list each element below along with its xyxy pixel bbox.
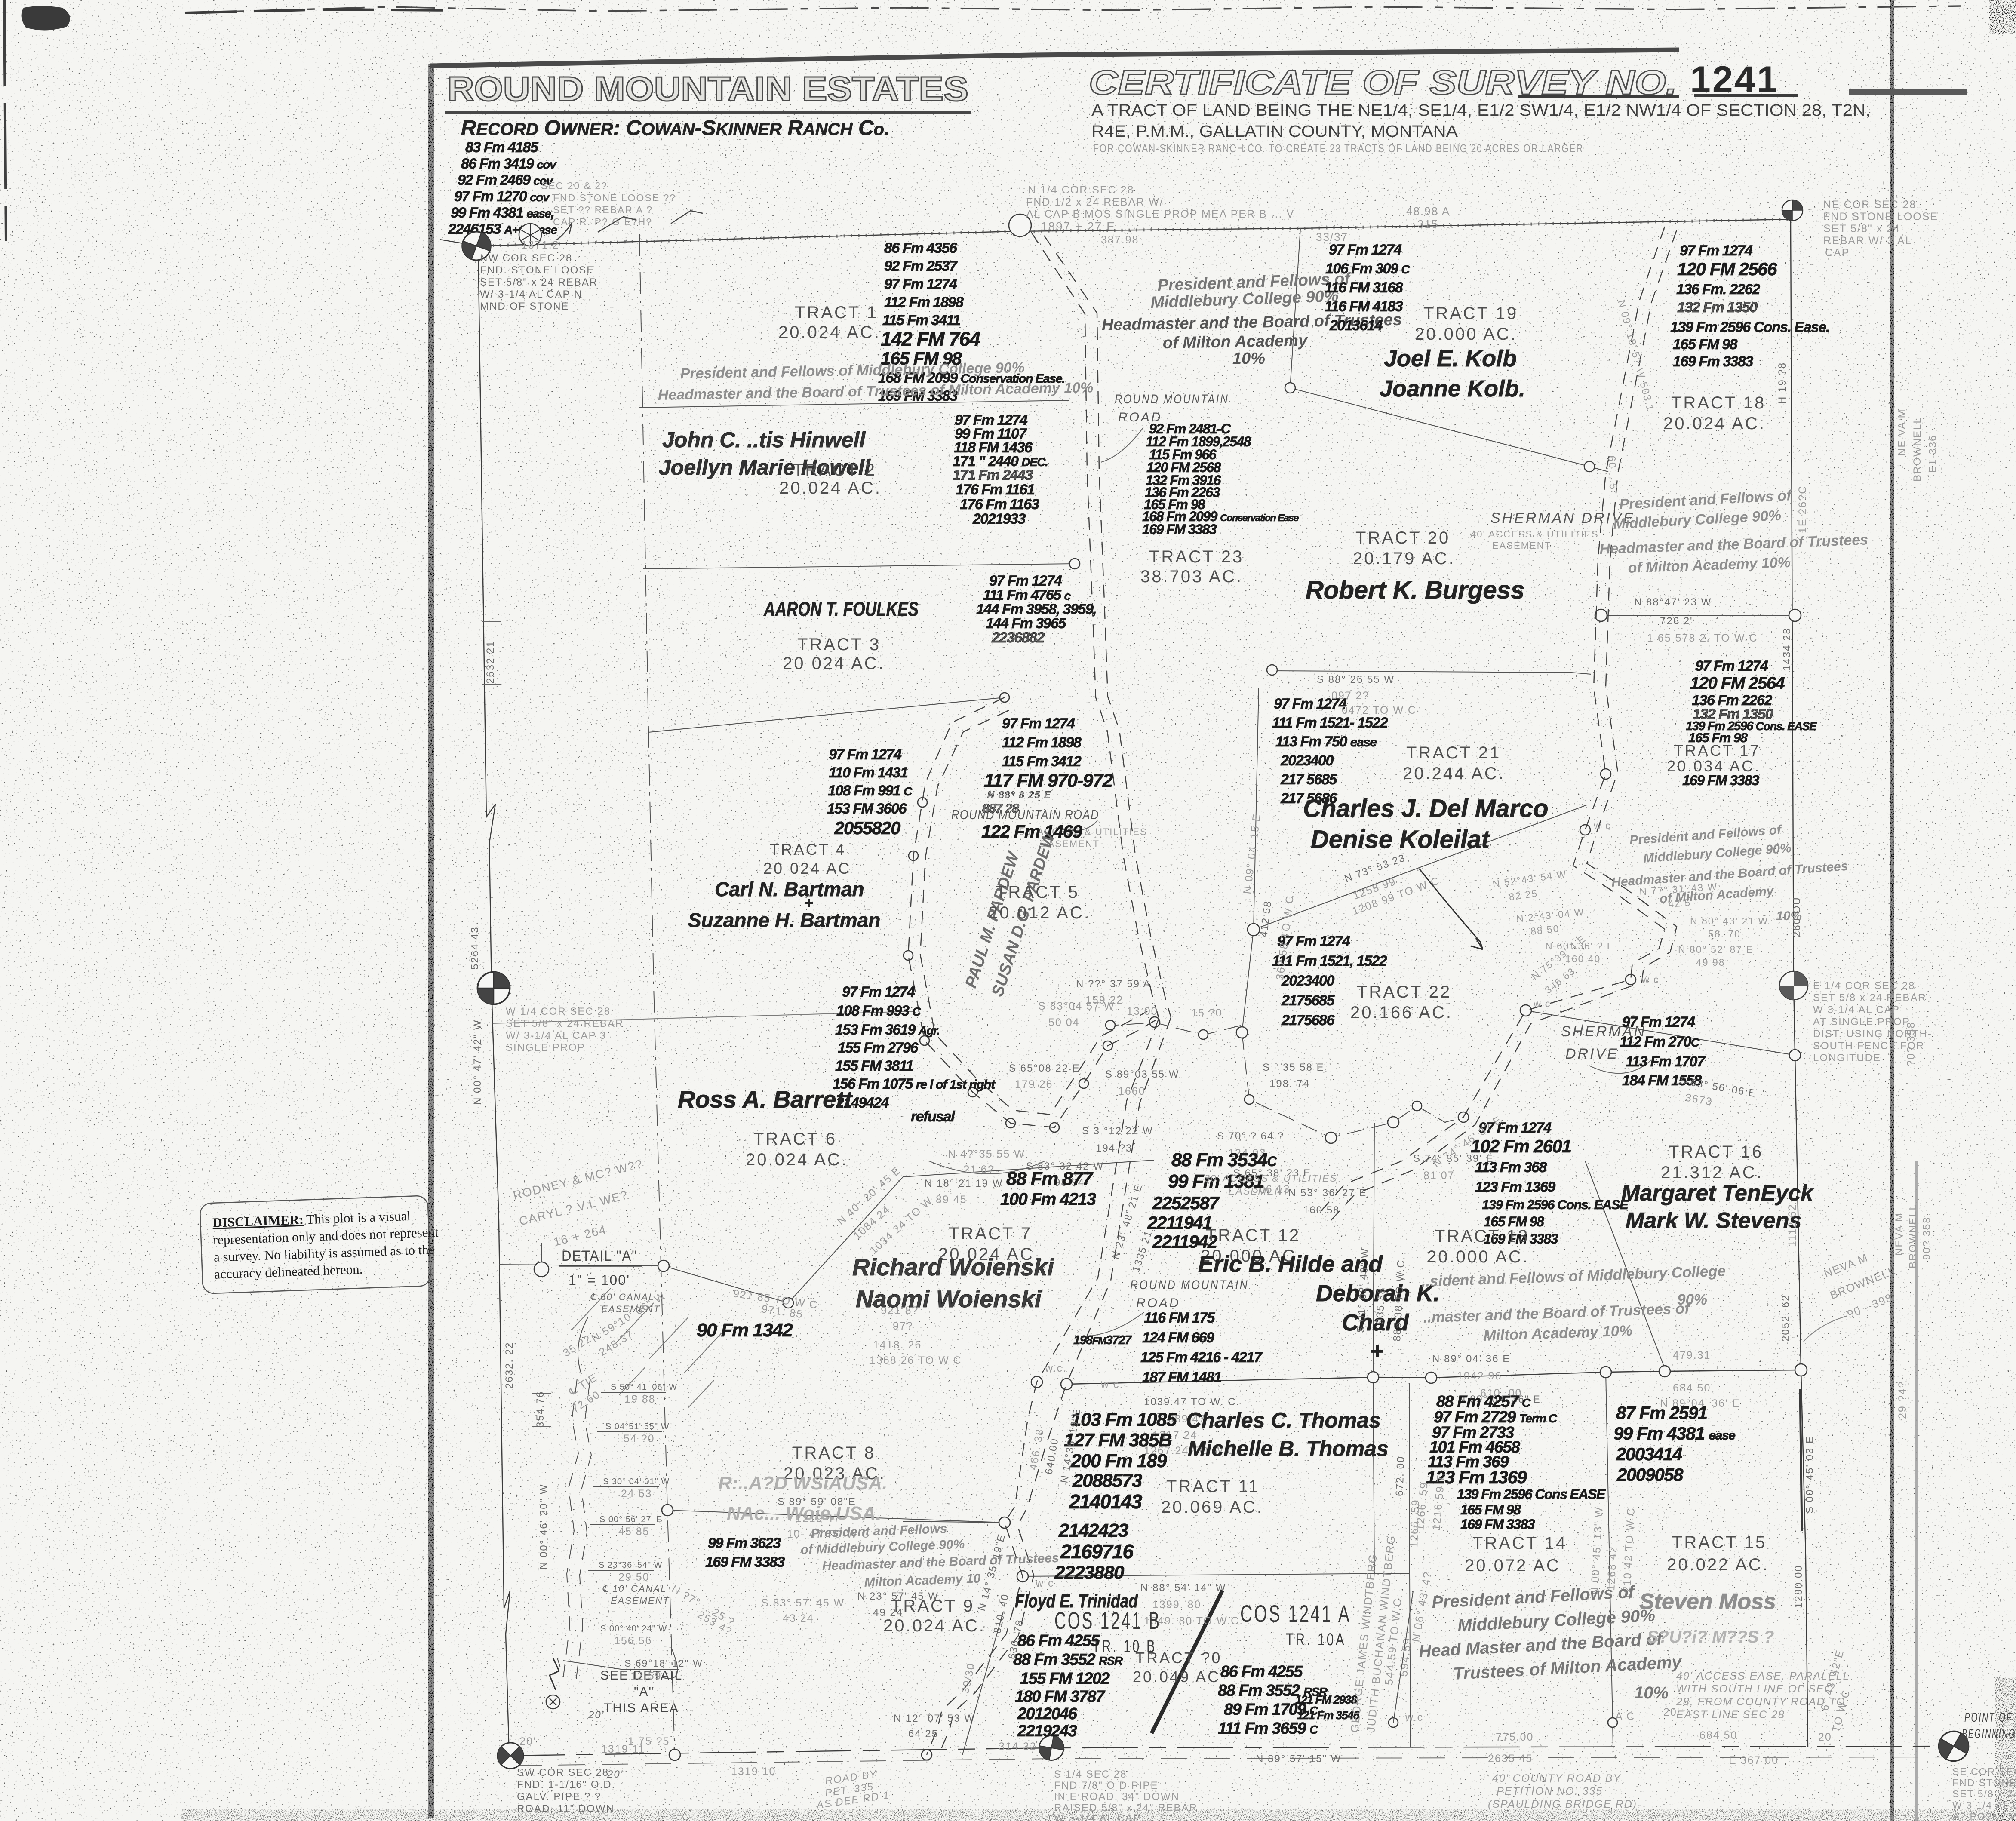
svg-text:110 Fm 1431: 110 Fm 1431: [829, 765, 908, 781]
svg-text:120 FM 2564: 120 FM 2564: [1690, 674, 1785, 693]
svg-text:AL CAP B MOS SINGLE PROP MEA P: AL CAP B MOS SINGLE PROP MEA PER B ... V: [1026, 208, 1294, 220]
svg-text:142 FM 764: 142 FM 764: [881, 328, 980, 350]
svg-text:1039.47 TO W. C.: 1039.47 TO W. C.: [1144, 1396, 1240, 1408]
svg-text:TRACT 1: TRACT 1: [795, 303, 878, 322]
svg-text:TRACT 23: TRACT 23: [1149, 547, 1244, 566]
svg-text:111 Fm 3659 C: 111 Fm 3659 C: [1218, 1720, 1318, 1738]
svg-text:N 18° 21 19 W: N 18° 21 19 W: [925, 1178, 1003, 1189]
svg-text:20.024 AC.: 20.024 AC.: [1663, 414, 1766, 433]
svg-text:A TRACT OF LAND BEING THE NE1/: A TRACT OF LAND BEING THE NE1/4, SE1/4, …: [1091, 101, 1871, 120]
svg-text:CAP: CAP: [1825, 247, 1850, 259]
svg-text:354.76: 354.76: [535, 1391, 546, 1428]
svg-text:Denise Koleilat: Denise Koleilat: [1311, 826, 1490, 854]
svg-text:Eric B. Hilde and: Eric B. Hilde and: [1198, 1251, 1383, 1277]
svg-text:99 Fm 4381 ease,: 99 Fm 4381 ease,: [451, 205, 554, 221]
svg-text:169 FM 3383: 169 FM 3383: [705, 1554, 785, 1570]
svg-text:?0? 358: ?0? 358: [1905, 1022, 1917, 1066]
svg-text:2009058: 2009058: [1616, 1465, 1684, 1485]
svg-text:40' COUNTY ROAD BY: 40' COUNTY ROAD BY: [1492, 1772, 1621, 1784]
svg-text:165 FM 98: 165 FM 98: [1460, 1502, 1521, 1517]
svg-text:N 00° 46' 20" W: N 00° 46' 20" W: [538, 1484, 550, 1569]
svg-text:49 98: 49 98: [1696, 957, 1725, 968]
svg-text:Joanne Kolb.: Joanne Kolb.: [1380, 376, 1525, 402]
svg-text:TRACT 8: TRACT 8: [792, 1443, 876, 1462]
svg-text:S 30° 04' 01" W: S 30° 04' 01" W: [603, 1477, 670, 1486]
svg-text:COS 1241 B: COS 1241 B: [1054, 1607, 1161, 1634]
svg-text:12.59: 12.59: [630, 1670, 662, 1682]
svg-text:N 80° 43' 21 W: N 80° 43' 21 W: [1690, 915, 1768, 927]
svg-text:THIS AREA: THIS AREA: [604, 1701, 679, 1715]
svg-text:N 80° 52' 87 E: N 80° 52' 87 E: [1678, 944, 1754, 955]
svg-text:N 88° 8 25 E: N 88° 8 25 E: [987, 789, 1051, 800]
svg-text:81 07: 81 07: [1423, 1170, 1455, 1182]
svg-text:Charles J. Del Marco: Charles J. Del Marco: [1303, 795, 1549, 823]
svg-text:1660: 1660: [1118, 1085, 1146, 1097]
svg-text:TRACT 13: TRACT 13: [1435, 1227, 1529, 1246]
svg-text:86 Fm 4356: 86 Fm 4356: [884, 240, 958, 256]
svg-text:TRACT 20: TRACT 20: [1355, 528, 1450, 547]
svg-text:John C. ..tis Hinwell: John C. ..tis Hinwell: [662, 428, 866, 452]
svg-text:S 50° 41' 06" W: S 50° 41' 06" W: [611, 1382, 677, 1392]
svg-text:Michelle B. Thomas: Michelle B. Thomas: [1188, 1437, 1389, 1461]
svg-text:684 50: 684 50: [1699, 1729, 1737, 1741]
svg-text:136 Fm. 2262: 136 Fm. 2262: [1676, 281, 1760, 298]
svg-text:2142423: 2142423: [1058, 1520, 1128, 1541]
svg-text:115 Fm 3411: 115 Fm 3411: [882, 312, 960, 329]
svg-text:TRACT 3: TRACT 3: [797, 635, 881, 654]
svg-text:40' ACCESS EASE. PARALELL: 40' ACCESS EASE. PARALELL: [1676, 1670, 1850, 1682]
svg-text:20.179 AC.: 20.179 AC.: [1353, 549, 1455, 568]
svg-text:116 FM 175: 116 FM 175: [1144, 1310, 1216, 1326]
svg-text:AARON T. FOULKES: AARON T. FOULKES: [763, 598, 919, 620]
svg-text:N 1/4 COR SEC 28: N 1/4 COR SEC 28: [1028, 184, 1134, 196]
svg-text:1319 10: 1319 10: [731, 1766, 776, 1778]
svg-text:2088573: 2088573: [1072, 1470, 1142, 1491]
svg-text:Naomi Woienski: Naomi Woienski: [856, 1285, 1042, 1312]
svg-text:Mark W. Stevens: Mark W. Stevens: [1626, 1208, 1801, 1233]
svg-text:EASEMENT: EASEMENT: [1228, 1185, 1290, 1197]
svg-text:w c: w c: [1035, 1577, 1054, 1589]
svg-text:97 Fm 1274: 97 Fm 1274: [829, 746, 902, 763]
svg-text:60 ...5: 60 ...5: [1606, 455, 1619, 491]
svg-text:Steven Moss: Steven Moss: [1639, 1589, 1776, 1614]
svg-text:Suzanne H. Bartman: Suzanne H. Bartman: [688, 909, 880, 931]
svg-text:97 Fm 1274: 97 Fm 1274: [842, 984, 915, 1000]
svg-text:EAST LINE SEC 28: EAST LINE SEC 28: [1676, 1709, 1785, 1721]
svg-text:90? 358: 90? 358: [1921, 1216, 1933, 1260]
svg-text:124 FM 669: 124 FM 669: [1142, 1330, 1214, 1346]
svg-text:99 Fm 3623: 99 Fm 3623: [708, 1535, 781, 1551]
svg-text:Robert K. Burgess: Robert K. Burgess: [1306, 576, 1524, 604]
svg-text:w c: w c: [1533, 998, 1551, 1009]
svg-text:w.c: w.c: [1405, 1711, 1423, 1723]
svg-text:155 FM 3811: 155 FM 3811: [835, 1058, 913, 1074]
svg-text:29 50: 29 50: [618, 1571, 650, 1583]
svg-text:PETITION NO. 335: PETITION NO. 335: [1497, 1785, 1603, 1797]
svg-text:S 70° ? 64 ?: S 70° ? 64 ?: [1217, 1130, 1284, 1142]
svg-text:2140143: 2140143: [1069, 1490, 1142, 1513]
svg-text:139 Fm 2596 Cons EASE: 139 Fm 2596 Cons EASE: [1457, 1486, 1606, 1502]
svg-text:88 Fm 3534C: 88 Fm 3534C: [1171, 1149, 1277, 1170]
svg-text:N ??° 37 59 A: N ??° 37 59 A: [1076, 978, 1151, 990]
svg-text:217 5685: 217 5685: [1280, 771, 1337, 788]
svg-text:+: +: [1370, 1338, 1384, 1364]
svg-text:20.049 AC: 20.049 AC: [1133, 1668, 1220, 1686]
svg-text:21.312 AC.: 21.312 AC.: [1661, 1163, 1763, 1182]
svg-text:112 Fm 1898: 112 Fm 1898: [1002, 734, 1082, 751]
svg-text:℄ 10' CANAL: ℄ 10' CANAL: [602, 1583, 667, 1594]
svg-text:FND STONE LOOSE: FND STONE LOOSE: [1823, 211, 1938, 223]
svg-text:24 53: 24 53: [621, 1488, 652, 1500]
svg-text:125 Fm 4216 - 4217: 125 Fm 4216 - 4217: [1140, 1349, 1263, 1366]
svg-text:N 88° 54' 14" W: N 88° 54' 14" W: [1140, 1582, 1226, 1594]
svg-text:?1 6?: ?1 6?: [963, 1164, 995, 1176]
svg-text:SET 5/8" x 24: SET 5/8" x 24: [1823, 223, 1900, 235]
svg-text:Charles C. Thomas: Charles C. Thomas: [1186, 1408, 1381, 1432]
svg-text:123 Fm 1369: 123 Fm 1369: [1475, 1179, 1555, 1195]
svg-text:97 Fm 1274: 97 Fm 1274: [1695, 658, 1768, 674]
svg-text:1897 + 27 E: 1897 + 27 E: [1041, 220, 1116, 233]
svg-text:COS 1241 A: COS 1241 A: [1240, 1600, 1351, 1627]
svg-text:387.98: 387.98: [1101, 234, 1139, 246]
svg-text:165 FM 98: 165 FM 98: [1673, 336, 1738, 353]
svg-text:20.024 AC.: 20.024 AC.: [746, 1150, 848, 1169]
svg-text:ROUND MOUNTAIN: ROUND MOUNTAIN: [1130, 1278, 1249, 1292]
svg-text:BROWNELL: BROWNELL: [1912, 417, 1923, 482]
svg-text:2021933: 2021933: [972, 511, 1026, 527]
svg-text:S?U?i? M??S ?: S?U?i? M??S ?: [1647, 1628, 1774, 1646]
svg-text:20.034 AC.: 20.034 AC.: [1667, 757, 1761, 775]
svg-text:2632 21: 2632 21: [485, 640, 496, 684]
svg-text:1371.2: 1371.2: [521, 239, 559, 251]
svg-text:S 00° 45' 03 E: S 00° 45' 03 E: [1804, 1436, 1816, 1514]
svg-text:20.244 AC.: 20.244 AC.: [1403, 764, 1505, 783]
svg-text:ROUND MOUNTAIN ESTATES: ROUND MOUNTAIN ESTATES: [447, 70, 968, 108]
svg-text:86 Fm 3419 cov: 86 Fm 3419 cov: [461, 156, 557, 172]
svg-text:88 Fm 877: 88 Fm 877: [1006, 1168, 1094, 1189]
svg-text:TRACT 19: TRACT 19: [1423, 304, 1518, 323]
svg-text:43 24: 43 24: [783, 1612, 814, 1624]
svg-text:155 FM 1202: 155 FM 1202: [1020, 1670, 1110, 1688]
svg-text:1" = 100': 1" = 100': [569, 1272, 630, 1288]
svg-text:A C: A C: [1615, 1710, 1635, 1723]
svg-text:92 Fm 2537: 92 Fm 2537: [884, 258, 958, 274]
svg-text:N 53° 36' 27 E: N 53° 36' 27 E: [1288, 1187, 1367, 1199]
svg-text:R:..A?D WSiAUSA.: R:..A?D WSiAUSA.: [718, 1473, 888, 1494]
svg-text:100 Fm 4213: 100 Fm 4213: [1000, 1190, 1096, 1209]
svg-text:260 OU: 260 OU: [1791, 897, 1803, 937]
svg-text:121 FM 2938: 121 FM 2938: [1295, 1693, 1357, 1706]
svg-text:ROAD: ROAD: [1136, 1296, 1180, 1310]
svg-text:20': 20': [588, 1709, 604, 1721]
svg-text:314 32: 314 32: [999, 1741, 1036, 1753]
svg-text:155 Fm 2796: 155 Fm 2796: [838, 1040, 919, 1056]
svg-text:127 FM 385B: 127 FM 385B: [1064, 1430, 1172, 1451]
svg-text:1266. 59: 1266. 59: [1408, 1499, 1422, 1548]
svg-text:0472 TO W C: 0472 TO W C: [1342, 704, 1417, 716]
svg-text:113 Fm 1707: 113 Fm 1707: [1626, 1053, 1706, 1070]
svg-text:179 26: 179 26: [1015, 1078, 1053, 1090]
svg-text:BROWNELL: BROWNELL: [1907, 1204, 1919, 1268]
svg-text:200 Fm 189: 200 Fm 189: [1070, 1450, 1167, 1471]
svg-text:TRACT 2: TRACT 2: [793, 461, 876, 479]
svg-text:NE VA M: NE VA M: [1896, 408, 1908, 456]
svg-text:TRACT 9: TRACT 9: [891, 1597, 974, 1615]
svg-text:198. 74: 198. 74: [1269, 1078, 1310, 1090]
svg-text:92 Fm 2469 cov: 92 Fm 2469 cov: [458, 172, 553, 188]
svg-text:20.012 AC.: 20.012 AC.: [988, 903, 1091, 922]
svg-text:FND 1/2 x 24 REBAR W/: FND 1/2 x 24 REBAR W/: [1026, 196, 1164, 208]
svg-text:1434 28: 1434 28: [1781, 627, 1793, 671]
svg-text:2052. 62: 2052. 62: [1780, 1295, 1792, 1342]
svg-text:TRACT 4: TRACT 4: [770, 841, 846, 858]
svg-text:86 Fm 4255: 86 Fm 4255: [1017, 1632, 1100, 1650]
svg-text:1042 96: 1042 96: [1457, 1370, 1502, 1382]
svg-text:2175685: 2175685: [1281, 992, 1335, 1009]
svg-text:20.166 AC.: 20.166 AC.: [1350, 1003, 1453, 1022]
svg-text:2632. 22: 2632. 22: [504, 1342, 515, 1389]
svg-text:of Milton Academy: of Milton Academy: [1162, 332, 1308, 352]
svg-text:2012046: 2012046: [1017, 1705, 1078, 1723]
svg-text:115 Fm 3412: 115 Fm 3412: [1002, 753, 1082, 770]
svg-text:S 83°04 57 W: S 83°04 57 W: [1038, 1000, 1115, 1012]
svg-text:TRACT 14: TRACT 14: [1472, 1534, 1567, 1553]
svg-text:refusal: refusal: [911, 1109, 956, 1125]
svg-text:2023400: 2023400: [1281, 973, 1334, 989]
svg-text:N 88°47' 23 W: N 88°47' 23 W: [1634, 596, 1712, 608]
svg-text:19 88: 19 88: [624, 1393, 656, 1405]
svg-text:ROUND MOUNTAIN ROAD: ROUND MOUNTAIN ROAD: [951, 807, 1099, 822]
svg-text:20.000 AC.: 20.000 AC.: [1427, 1247, 1529, 1266]
svg-text:112 Fm 1898: 112 Fm 1898: [884, 294, 964, 310]
svg-text:2175686: 2175686: [1281, 1012, 1335, 1029]
svg-text:176 Fm 1163: 176 Fm 1163: [960, 496, 1039, 513]
svg-text:BEGINNING: BEGINNING: [1962, 1727, 2016, 1741]
svg-text:116 FM 4183: 116 FM 4183: [1325, 298, 1403, 315]
svg-text:S ° 35 58 E: S ° 35 58 E: [1263, 1062, 1325, 1073]
svg-text:20': 20': [519, 1735, 536, 1747]
svg-text:S 83° 57' 45 W: S 83° 57' 45 W: [761, 1597, 845, 1609]
svg-text:1 75 ?5: 1 75 ?5: [628, 1735, 670, 1747]
svg-text:169 FM 3383: 169 FM 3383: [1142, 522, 1217, 537]
svg-text:775.00: 775.00: [1496, 1731, 1534, 1743]
svg-text:116 FM 3168: 116 FM 3168: [1325, 279, 1403, 296]
svg-text:2013614: 2013614: [1329, 317, 1383, 334]
svg-text:DETAIL "A": DETAIL "A": [562, 1248, 637, 1264]
svg-text:1219 47: 1219 47: [796, 1513, 840, 1525]
svg-text:64 25: 64 25: [908, 1728, 938, 1740]
svg-text:97 Fm 1274: 97 Fm 1274: [1329, 242, 1402, 258]
svg-text:TRACT 22: TRACT 22: [1357, 983, 1451, 1001]
svg-text:S 00° 40' 24" W: S 00° 40' 24" W: [600, 1624, 667, 1634]
svg-text:FOR COWAN-SKINNER RANCH CO. T: FOR COWAN-SKINNER RANCH CO. TO CREATE 23…: [1093, 142, 1583, 155]
svg-text:20': 20': [607, 1769, 623, 1780]
svg-text:108 Fm 991 C: 108 Fm 991 C: [828, 783, 913, 799]
svg-text:113 Fm 750 ease: 113 Fm 750 ease: [1275, 734, 1377, 750]
svg-text:Ross A. Barrett: Ross A. Barrett: [678, 1086, 853, 1113]
svg-text:N 12° 07' 53 W: N 12° 07' 53 W: [894, 1713, 975, 1724]
svg-text:122 Fm 1469: 122 Fm 1469: [981, 821, 1082, 841]
svg-text:TRACT 11: TRACT 11: [1166, 1477, 1260, 1496]
svg-text:2169716: 2169716: [1060, 1540, 1134, 1563]
svg-text:90 Fm 1342: 90 Fm 1342: [697, 1320, 793, 1341]
svg-text:N 00° 47' 42" W: N 00° 47' 42" W: [472, 1020, 483, 1105]
svg-text:29 ?4?: 29 ?4?: [1896, 1381, 1908, 1419]
svg-text:97 Fm 1274: 97 Fm 1274: [1002, 716, 1075, 732]
svg-text:S 89°03 55 W: S 89°03 55 W: [1105, 1069, 1179, 1080]
svg-text:N 89° 04' 36 E: N 89° 04' 36 E: [1432, 1353, 1510, 1365]
svg-text:2635 45: 2635 45: [1488, 1753, 1533, 1765]
svg-text:180 FM 3787: 180 FM 3787: [1015, 1688, 1106, 1706]
svg-text:S 65°08 22 E: S 65°08 22 E: [1009, 1063, 1080, 1074]
svg-text:5264 43: 5264 43: [469, 926, 481, 970]
svg-text:106 Fm 309 C: 106 Fm 309 C: [1325, 261, 1410, 277]
svg-text:S 69°18' 12" W: S 69°18' 12" W: [624, 1658, 703, 1669]
svg-text:S 88° 26 55 W: S 88° 26 55 W: [1317, 674, 1395, 685]
svg-text:NE COR SEC 28,: NE COR SEC 28,: [1823, 199, 1920, 211]
svg-text:Joel E. Kolb: Joel E. Kolb: [1384, 346, 1517, 372]
svg-text:TRACT 12: TRACT 12: [1206, 1226, 1300, 1245]
svg-text:97 Fm 1274: 97 Fm 1274: [884, 276, 957, 292]
svg-text:TRACT 5: TRACT 5: [996, 883, 1079, 902]
svg-text:ROUND MOUNTAIN: ROUND MOUNTAIN: [1115, 392, 1229, 406]
svg-text:TRACT 7: TRACT 7: [949, 1224, 1032, 1243]
svg-text:479.31: 479.31: [1673, 1349, 1711, 1361]
svg-text:w c: w c: [1641, 974, 1660, 985]
svg-text:1 65 578 2. TO W C: 1 65 578 2. TO W C: [1647, 632, 1758, 644]
svg-text:REBAR W/ 3 AL: REBAR W/ 3 AL: [1823, 235, 1912, 247]
svg-text:103 Fm 1085: 103 Fm 1085: [1071, 1409, 1177, 1430]
svg-text:156 Fm 1075 re l of 1st right: 156 Fm 1075 re l of 1st right: [833, 1076, 996, 1092]
svg-text:Margaret TenEyck: Margaret TenEyck: [1621, 1181, 1814, 1206]
svg-text:171 Fm 2443: 171 Fm 2443: [953, 467, 1033, 483]
svg-text:89 45: 89 45: [936, 1194, 967, 1206]
svg-text:Carl N. Bartman: Carl N. Bartman: [715, 878, 864, 900]
svg-text:20: 20: [1818, 1731, 1832, 1743]
svg-text:887 ?8: 887 ?8: [982, 801, 1019, 816]
svg-text:120 FM 2566: 120 FM 2566: [1677, 259, 1777, 279]
svg-text:156.56: 156.56: [614, 1635, 652, 1647]
svg-text:97 Fm 1270 cov: 97 Fm 1270 cov: [454, 188, 550, 205]
svg-text:20.022 AC.: 20.022 AC.: [1667, 1555, 1769, 1574]
svg-text:169 Fm 3383: 169 Fm 3383: [1673, 353, 1753, 370]
svg-text:2236882: 2236882: [991, 630, 1045, 646]
svg-text:H 19 ?8: H 19 ?8: [1776, 362, 1788, 404]
svg-text:40' ACCESS & UTILITIES: 40' ACCESS & UTILITIES: [1471, 529, 1599, 540]
svg-text:20.000 AC.: 20.000 AC.: [1415, 325, 1517, 344]
svg-text:111 Fm 1521- 1522: 111 Fm 1521- 1522: [1272, 715, 1388, 731]
svg-text:20 024 AC: 20 024 AC: [763, 860, 851, 877]
svg-text:10%: 10%: [1232, 350, 1265, 368]
svg-text:S 23°36' 54" W: S 23°36' 54" W: [599, 1560, 663, 1570]
svg-text:TRACT ?0: TRACT ?0: [1135, 1649, 1222, 1667]
svg-text:139 Fm 2596 Cons. Ease.: 139 Fm 2596 Cons. Ease.: [1670, 319, 1829, 335]
svg-text:672. 00: 672. 00: [1394, 1456, 1407, 1496]
svg-text:15 ?0: 15 ?0: [1191, 1007, 1223, 1019]
svg-text:S 04°51' 55" W: S 04°51' 55" W: [605, 1422, 670, 1431]
svg-text:198FM3727: 198FM3727: [1073, 1333, 1132, 1347]
svg-text:97 Fm 1274: 97 Fm 1274: [1680, 243, 1753, 259]
svg-text:TRACT 6: TRACT 6: [753, 1130, 837, 1148]
svg-text:58. 70: 58. 70: [1708, 928, 1741, 940]
svg-text:1280.00: 1280.00: [1793, 1565, 1804, 1608]
svg-text:169 FM 3383: 169 FM 3383: [1460, 1517, 1535, 1532]
svg-text:S 00° 56' 27 'E: S 00° 56' 27 'E: [599, 1515, 662, 1524]
svg-text:2003414: 2003414: [1616, 1444, 1682, 1464]
svg-text:13 00: 13 00: [1127, 1005, 1158, 1017]
svg-text:S 74° 35' 39' E: S 74° 35' 39' E: [1413, 1153, 1494, 1164]
svg-text:50 04: 50 04: [1048, 1016, 1080, 1029]
svg-text:112 Fm 270C: 112 Fm 270C: [1620, 1034, 1700, 1050]
svg-text:w c: w c: [1593, 820, 1611, 831]
svg-text:R4E, P.M.M., GALLATIN COUNTY,: R4E, P.M.M., GALLATIN COUNTY, MONTANA: [1091, 123, 1458, 141]
svg-text:S 3 °12 22 W: S 3 °12 22 W: [1082, 1125, 1153, 1137]
svg-text:N 89° 57' 15" W: N 89° 57' 15" W: [1256, 1753, 1341, 1765]
svg-text:1241: 1241: [1690, 59, 1779, 100]
svg-text:TR. 10A: TR. 10A: [1286, 1630, 1346, 1649]
svg-text:153 Fm 3619 Agr.: 153 Fm 3619 Agr.: [835, 1022, 939, 1038]
svg-text:NEVA M: NEVA M: [1893, 1212, 1905, 1256]
svg-text:TRACT 15: TRACT 15: [1672, 1533, 1767, 1552]
svg-text:30' ACCESS & UTILITIES: 30' ACCESS & UTILITIES: [1204, 1173, 1337, 1184]
svg-text:20.069 AC.: 20.069 AC.: [1161, 1498, 1263, 1517]
svg-text:WITH SOUTH LINE OF SEC: WITH SOUTH LINE OF SEC: [1676, 1683, 1833, 1695]
svg-text:w.c.: w.c.: [1045, 1362, 1067, 1374]
svg-text:w c.: w c.: [1100, 1379, 1123, 1391]
svg-text:SW COR SEC 28 FND. 1-1/16" O: SW COR SEC 28 FND. 1-1/16" O.D.GALV. PIP…: [517, 1767, 615, 1815]
svg-text:10%: 10%: [1634, 1683, 1669, 1702]
svg-text:097 2?: 097 2?: [1331, 690, 1369, 702]
svg-text:TRACT 18: TRACT 18: [1671, 393, 1766, 412]
svg-text:1368 26 TO W C: 1368 26 TO W C: [870, 1354, 962, 1367]
svg-text:139 Fm 2596 Cons. EASE: 139 Fm 2596 Cons. EASE: [1482, 1197, 1629, 1212]
svg-text:2223880: 2223880: [1054, 1562, 1125, 1583]
svg-text:684 50: 684 50: [1673, 1382, 1711, 1394]
svg-text:935.38: 935.38: [1374, 1287, 1387, 1325]
svg-text:DISCLAIMER:: DISCLAIMER:: [212, 1212, 304, 1230]
svg-text:TRACT 17: TRACT 17: [1674, 742, 1760, 759]
svg-text:48.98 A: 48.98 A: [1406, 205, 1450, 218]
svg-text:20.024 AC.: 20.024 AC.: [778, 323, 881, 342]
svg-text:117 FM 970-972: 117 FM 970-972: [984, 770, 1113, 791]
svg-text:20 024 AC.: 20 024 AC.: [783, 654, 885, 673]
svg-text:108 Fm 993 C: 108 Fm 993 C: [836, 1003, 921, 1019]
svg-text:86 Fm 4255: 86 Fm 4255: [1220, 1663, 1303, 1681]
svg-text:E 367 00: E 367 00: [1729, 1754, 1779, 1766]
svg-text:(SPAULDING BRIDGE RD): (SPAULDING BRIDGE RD): [1488, 1798, 1637, 1810]
svg-text:EASEMENT: EASEMENT: [611, 1595, 670, 1606]
svg-text:Richard Woienski: Richard Woienski: [852, 1253, 1054, 1281]
svg-text:TRACT 21: TRACT 21: [1406, 743, 1501, 762]
svg-text:54 ?0: 54 ?0: [624, 1433, 655, 1445]
svg-text:1112 62: 1112 62: [1786, 1204, 1798, 1247]
svg-text:2023400: 2023400: [1280, 752, 1334, 769]
svg-text:DRIVE: DRIVE: [1565, 1046, 1619, 1062]
svg-text:315 ...: 315 ...: [1417, 218, 1454, 230]
svg-text:194 ?3: 194 ?3: [1096, 1142, 1132, 1154]
svg-text:83 Fm 4185: 83 Fm 4185: [465, 139, 539, 156]
svg-text:"A": "A": [634, 1685, 654, 1699]
svg-text:S 89° 59' 08"E: S 89° 59' 08"E: [778, 1496, 856, 1508]
svg-text:160 58: 160 58: [1303, 1204, 1340, 1216]
svg-text:20.024 AC.: 20.024 AC.: [779, 479, 882, 497]
svg-text:97 Fm 1274: 97 Fm 1274: [1622, 1014, 1695, 1030]
svg-text:111 Fm 1521, 1522: 111 Fm 1521, 1522: [1272, 953, 1387, 969]
svg-text:2252587: 2252587: [1152, 1193, 1220, 1213]
svg-text:87 Fm 2591: 87 Fm 2591: [1616, 1403, 1707, 1423]
svg-text:153 FM 3606: 153 FM 3606: [827, 801, 907, 817]
svg-text:726 2': 726 2': [1660, 615, 1693, 627]
